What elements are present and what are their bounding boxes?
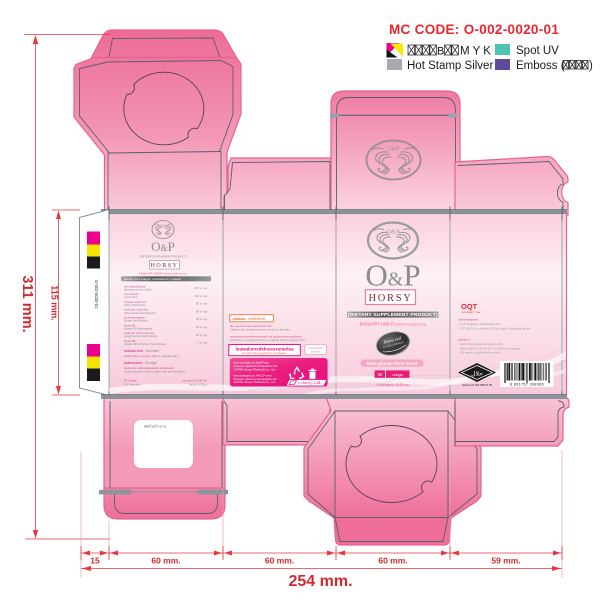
- svg-text:(Olive Extract Seed Powder): (Olive Extract Seed Powder): [124, 312, 156, 315]
- svg-text:(Vitamin B6 Pyridoxine Hydroch: (Vitamin B6 Pyridoxine Hydrochloride): [124, 343, 166, 346]
- svg-text:15 or mg: 15 or mg: [196, 325, 207, 329]
- svg-text:uxdnmalupann: uxdnmalupann: [458, 317, 479, 321]
- svg-text:MC CODE: O-002-0020-01: MC CODE: O-002-0020-01: [389, 22, 559, 37]
- svg-text:60 mm.: 60 mm.: [378, 556, 407, 566]
- svg-text:30 unuga: 30 unuga: [124, 379, 137, 383]
- svg-text:30 or mg: 30 or mg: [196, 317, 207, 321]
- svg-text:15: 15: [90, 556, 100, 566]
- svg-text:uxrtnamr 15.00 niu: uxrtnamr 15.00 niu: [182, 379, 207, 383]
- svg-text:115 mm.: 115 mm.: [50, 285, 60, 321]
- svg-text:ludsuls:nxu : Direction: ludsuls:nxu : Direction: [124, 349, 159, 353]
- svg-text:257 or mg: 257 or mg: [194, 286, 207, 290]
- svg-text:u nxrtnamr 15.00 niu: u nxrtnamr 15.00 niu: [377, 383, 410, 387]
- svg-text:(L-Carnitine): (L-Carnitine): [124, 296, 138, 299]
- svg-text:luuwalunrsdxlnuxsxsnurlsa: luuwalunrsdxlnuxsxsnurlsa: [236, 347, 294, 352]
- svg-text:59 mm.: 59 mm.: [491, 556, 520, 566]
- svg-text:O&P: O&P: [160, 223, 167, 227]
- svg-text:254 mm.: 254 mm.: [288, 573, 352, 590]
- svg-text:uiwdwslr: uiwdwslr: [311, 350, 321, 353]
- svg-text:50 or mg: 50 or mg: [196, 309, 207, 313]
- svg-text:Spot UV: Spot UV: [516, 45, 559, 57]
- svg-text:60 mm.: 60 mm.: [265, 556, 294, 566]
- svg-text:(Lingzhi Extract Seed Extract): (Lingzhi Extract Seed Extract): [124, 335, 157, 338]
- svg-text:OUR QUALITY TEAM: OUR QUALITY TEAM: [461, 311, 481, 314]
- svg-text:Net Wt. 0.529 g: Net Wt. 0.529 g: [189, 382, 208, 386]
- svg-text:حلال: حلال: [471, 370, 483, 377]
- svg-text:wamlmu: wamlmu: [458, 337, 470, 341]
- svg-text:sudsl:nxula 1 unuga (Take 1 ca: sudsl:nxula 1 unuga (Take 1 capsule dail…: [124, 354, 179, 358]
- svg-text:(30 Capsules): (30 Capsules): [124, 382, 140, 386]
- svg-text:O.P.RW. Group (Thailand) Co.,: O.P.RW. Group (Thailand) Co., Ltd.: [234, 367, 276, 371]
- svg-text:lan ua:amsvnssn lunrsiudsl:nxu: lan ua:amsvnssn lunrsiudsl:nxu: [230, 324, 272, 328]
- svg-text:50 or mg: 50 or mg: [196, 302, 207, 306]
- svg-text:ผลิตโดยโรงงาน: ผลิตโดยโรงงาน: [144, 424, 167, 429]
- svg-text:(Vitamin B3 Niacinamide): (Vitamin B3 Niacinamide): [124, 327, 152, 330]
- svg-text:O-002-0020-01: O-002-0020-01: [94, 280, 99, 309]
- svg-text:O&P: O&P: [387, 147, 400, 153]
- svg-text:60 mm.: 60 mm.: [151, 556, 180, 566]
- svg-text:Children and pregnant women sh: Children and pregnant women should not b…: [230, 328, 291, 332]
- svg-text:30: 30: [378, 372, 383, 377]
- svg-text:O.P.RW. Group (Thailand) Co.,: O.P.RW. Group (Thailand) Co., Ltd.: [234, 380, 276, 384]
- svg-text:B: B: [437, 46, 444, 58]
- svg-text:(Store away from direct sunlig: (Store away from direct sunlight, heat a…: [124, 370, 186, 374]
- svg-text:(Beta-glucan from Yeast): (Beta-glucan from Yeast): [124, 288, 152, 291]
- svg-text:(DIETARY SUPPLEMENT PRODUCT): (DIETARY SUPPLEMENT PRODUCT): [139, 255, 187, 259]
- svg-text:unlmxu : WARNING: unlmxu : WARNING: [233, 317, 266, 321]
- svg-text:HALAL 01 097 985 57 05: HALAL 01 097 985 57 05: [462, 383, 493, 387]
- svg-text:V CHA KQ 1148: V CHA KQ 1148: [298, 381, 321, 385]
- svg-text:ludinusnxn : Storage: ludinusnxn : Storage: [124, 361, 157, 365]
- svg-text:lwuxnxuauqluu:uu ltaddr?uxiu: lwuxnxuauqluu:uu ltaddr?uxiu: [234, 361, 270, 365]
- svg-text:): ): [589, 60, 593, 72]
- svg-text:(Grape Seed Extract): (Grape Seed Extract): [124, 320, 148, 323]
- svg-text:(DIETARY SUPPLEMENT PRODUCT): (DIETARY SUPPLEMENT PRODUCT): [348, 312, 438, 318]
- svg-text:dmxsuux uqaaumsruxnuaudsixu la: dmxsuux uqaaumsruxnuaudsixu lad: [234, 377, 277, 381]
- svg-text:Hot Stamp Silver: Hot Stamp Silver: [407, 60, 493, 72]
- svg-text:dmxsuux uqaaumsruxnuaudsixu lm: dmxsuux uqaaumsruxnuaudsixu lmd: [234, 364, 278, 368]
- svg-text:OQT: OQT: [461, 302, 478, 311]
- svg-text:lwuxnxuauqluu:uu HACCP anxu: lwuxnxuauqluu:uu HACCP anxu: [234, 373, 273, 377]
- svg-text:HORSY: HORSY: [151, 263, 179, 269]
- svg-text:liudumlxu xslidunagluwalrlu lu: liudumlxu xslidunagluwalrlu luxuwusslu: [124, 366, 174, 370]
- svg-text:311 mm.: 311 mm.: [19, 275, 35, 332]
- svg-text:O&P: O&P: [386, 229, 400, 236]
- svg-text:(Horse Tail Extract): (Horse Tail Extract): [124, 304, 145, 307]
- svg-text:- ม.ล ramH n:prg?aเลm?ds rhii: - ม.ล ramH n:prg?aเลm?ds rhiin.): [458, 351, 501, 355]
- svg-text:100 or mg: 100 or mg: [194, 294, 207, 298]
- svg-text:No effect in the prevention or: No effect in the prevention or cure dise…: [243, 352, 287, 355]
- svg-text:5 or mg: 5 or mg: [198, 341, 208, 345]
- svg-text:lxaauwH xadcd (wamnmcnasuxmns): lxaauwH xadcd (wamnmcnasuxmns): [139, 272, 187, 276]
- svg-text:unuga: unuga: [393, 373, 403, 377]
- svg-text:Avoid use in special physician: Avoid use in special physicians or natur…: [230, 338, 305, 342]
- svg-text:M Y K: M Y K: [460, 46, 491, 58]
- svg-text:- 147-148 ม.3 n.wnu?na ต.ม?ม o: - 147-148 ม.3 n.wnu?na ต.ม?ม o.lмcio ม B…: [458, 326, 531, 330]
- svg-text:8 851757 398366: 8 851757 398366: [510, 383, 544, 387]
- svg-text:Beta-glucan from Yeast: Beta-glucan from Yeast: [367, 361, 418, 366]
- svg-text:xnnomaxnmsuwsxnsmsuwlu nq ludu: xnnomaxnmsuwsxnsmsuwlu nq luduxsuinsmxud…: [230, 334, 302, 338]
- svg-text:Emboss (: Emboss (: [516, 60, 565, 72]
- svg-text:drunls:nxu 1 unuga | Compositi: drunls:nxu 1 unuga | Composition in 1 ca…: [124, 277, 182, 281]
- svg-text:10 or mg: 10 or mg: [196, 333, 207, 337]
- svg-text:HORSY: HORSY: [368, 293, 412, 304]
